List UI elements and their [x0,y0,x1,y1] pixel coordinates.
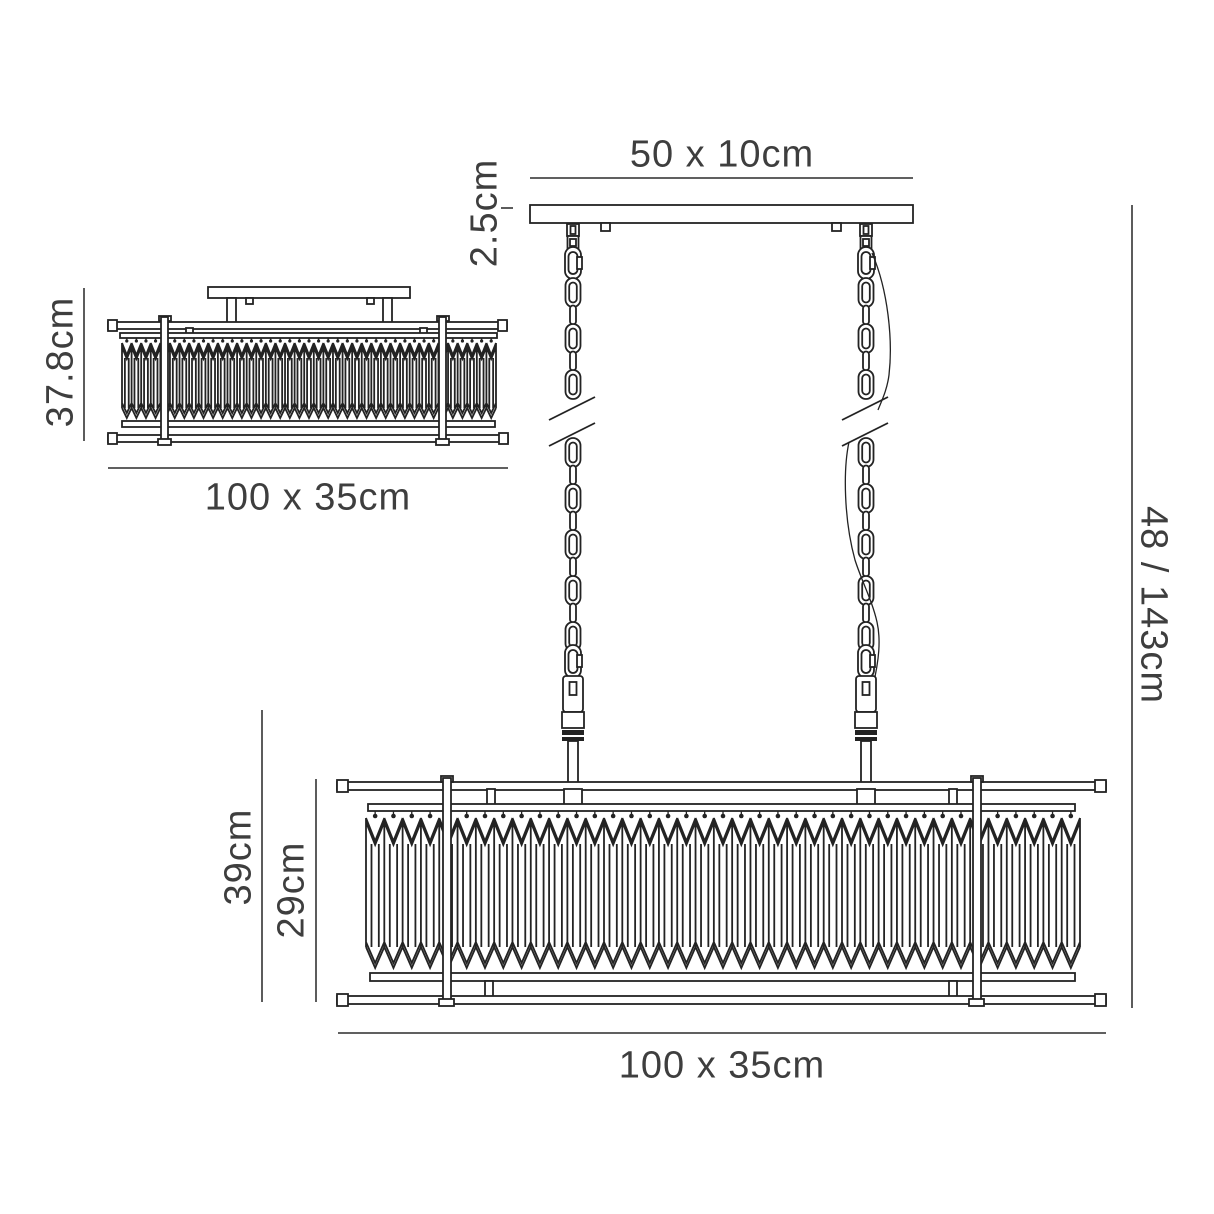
post-foot [158,439,171,445]
hook-bead [413,339,416,342]
hook-bead [959,814,964,819]
canopy-plate [530,205,913,223]
post-stem [439,317,446,444]
hook-bead [212,339,215,342]
hook-bead [867,814,872,819]
hook-bead [409,814,414,819]
chain-link-inner [862,443,870,463]
carabiner-top-latch [577,257,582,269]
side-view [108,287,508,445]
bottom-bar-endcap-right [1095,994,1106,1006]
hook-bead [394,339,397,342]
hook-bead [483,814,488,819]
hook-bead [574,814,579,819]
chain-link-inner [569,489,577,509]
post-stem [161,317,168,444]
lower-rail [370,973,1075,981]
bottom-bar-endcap-left [337,994,348,1006]
pendant-width-label: 100 x 35cm [619,1044,825,1086]
hook-bead [144,339,147,342]
hook-bead [721,814,726,819]
hook-bead [428,814,433,819]
post-stem [973,778,981,1004]
hook-bead [757,814,762,819]
break-mark [842,397,888,420]
hanger-rod [861,741,871,783]
hook-bead [995,814,1000,819]
hook-bead [422,339,425,342]
hook-bead [629,814,634,819]
chain-link-small [863,352,869,371]
post-foot [436,439,449,445]
side-canopy-plate [208,287,410,298]
crystal-band-height-label: 29cm [270,842,312,939]
hook-bead [461,339,464,342]
chain-link-inner [569,443,577,463]
hook-bead [501,814,506,819]
hook-bead [556,814,561,819]
chain-link-small [863,604,869,623]
hook-bead [288,339,291,342]
hook-bead [776,814,781,819]
hook-bead [593,814,598,819]
dimensions: 37.8cm 100 x 35cm 50 x 10cm 2.5cm 48 / 1… [39,133,1174,1086]
chain-link-small [570,466,576,485]
body-height-label: 39cm [217,809,259,906]
chain-link-inner [862,375,870,395]
hook-bead [125,339,128,342]
chain-link-small [863,558,869,577]
loop-fitting-inner [863,239,869,246]
chain-link-small [863,512,869,531]
collar [855,712,877,728]
chain-link-inner [569,283,577,303]
side-top-bar-endcap-right [498,320,507,331]
hook-bead [183,339,186,342]
chain-link-inner [862,535,870,555]
hook-bead [346,339,349,342]
hook-bead [666,814,671,819]
hook-bead [403,339,406,342]
chain-link-small [570,352,576,371]
chain-link-small [570,306,576,325]
hook-bead [317,339,320,342]
post-foot [439,999,454,1006]
hook-bead [794,814,799,819]
hook-bead [279,339,282,342]
hook-bead [904,814,909,819]
hook-bead [1050,814,1055,819]
side-canopy-clip-right [367,298,374,304]
top-bar-endcap-left [337,780,348,792]
canopy-clip-right [832,223,841,231]
side-stem-left [227,298,236,323]
chain-link-small [570,512,576,531]
hook-bead [702,814,707,819]
top-bar [337,782,1106,790]
suspension-chain-right [842,224,890,783]
side-width-label: 100 x 35cm [205,476,411,518]
hook-bead [391,814,396,819]
hook-bead [355,339,358,342]
hook-bead [336,339,339,342]
hook-bead [940,814,945,819]
loop-fitting-inner [570,239,576,246]
hook-bead [470,339,473,342]
hanger-rod [568,741,578,783]
break-mark [549,397,595,420]
hook-bead [154,339,157,342]
collar-band [855,730,877,735]
hook-bead [885,814,890,819]
side-height-label: 37.8cm [39,297,81,428]
hook-bead [259,339,262,342]
socket-fitting-inner [863,682,870,695]
hook-bead [173,339,176,342]
crystal-rail [368,804,1075,811]
hook-bead [135,339,138,342]
hook-bead [432,339,435,342]
carabiner-bottom-latch [870,655,875,667]
canopy-thickness-label: 2.5cm [463,159,505,267]
hook-bead [739,814,744,819]
dimension-diagram-page: 37.8cm 100 x 35cm 50 x 10cm 2.5cm 48 / 1… [0,0,1214,1214]
chain-link-small [570,604,576,623]
hook-bead [812,814,817,819]
side-stem-right [383,298,392,323]
chain-link-small [863,306,869,325]
hook-bead [327,339,330,342]
chain-link-inner [569,581,577,601]
hook-bead [1069,814,1074,819]
hook-bead [365,339,368,342]
canopy-stud-inner [571,226,576,234]
hook-bead [240,339,243,342]
hook-bead [202,339,205,342]
socket-fitting-inner [570,682,577,695]
hook-bead [269,339,272,342]
chain-link-inner [569,329,577,349]
overall-drop-label: 48 / 143cm [1133,506,1175,704]
canopy-clip-left [601,223,610,231]
hook-bead [1032,814,1037,819]
side-canopy-clip-left [246,298,253,304]
hook-bead [307,339,310,342]
chain-link-inner [862,329,870,349]
hook-bead [831,814,836,819]
hook-bead [538,814,543,819]
hook-bead [647,814,652,819]
top-bar-endcap-right [1095,780,1106,792]
chain-link-inner [569,627,577,647]
chain-link-small [863,466,869,485]
canopy-stud-inner [864,226,869,234]
hook-bead [250,339,253,342]
lighting-dimension-diagram: 37.8cm 100 x 35cm 50 x 10cm 2.5cm 48 / 1… [0,0,1214,1214]
hook-bead [375,339,378,342]
hook-bead [519,814,524,819]
hook-bead [221,339,224,342]
hook-bead [611,814,616,819]
collar [562,712,584,728]
hook-bead [490,339,493,342]
side-bottom-bar-endcap-right [499,433,508,444]
post-stem [443,778,451,1004]
chain-link-inner [569,535,577,555]
hook-bead [684,814,689,819]
hook-bead [384,339,387,342]
chain-link-inner [862,489,870,509]
side-top-bar-endcap-left [108,320,117,331]
hook-bead [922,814,927,819]
hook-bead [464,814,469,819]
hook-bead [849,814,854,819]
suspension-chain-left [549,224,595,783]
hook-bead [231,339,234,342]
hook-bead [373,814,378,819]
side-bottom-bar-endcap-left [108,433,117,444]
hook-bead [451,339,454,342]
hook-bead [298,339,301,342]
hook-bead [480,339,483,342]
collar-band [562,730,584,735]
canopy-size-label: 50 x 10cm [630,133,814,175]
power-cable [872,253,890,410]
carabiner-bottom-latch [577,655,582,667]
chain-link-inner [569,375,577,395]
hook-bead [1014,814,1019,819]
chain-link-inner [862,283,870,303]
post-foot [969,999,984,1006]
chain-link-inner [862,627,870,647]
chain-link-small [570,558,576,577]
hook-bead [192,339,195,342]
